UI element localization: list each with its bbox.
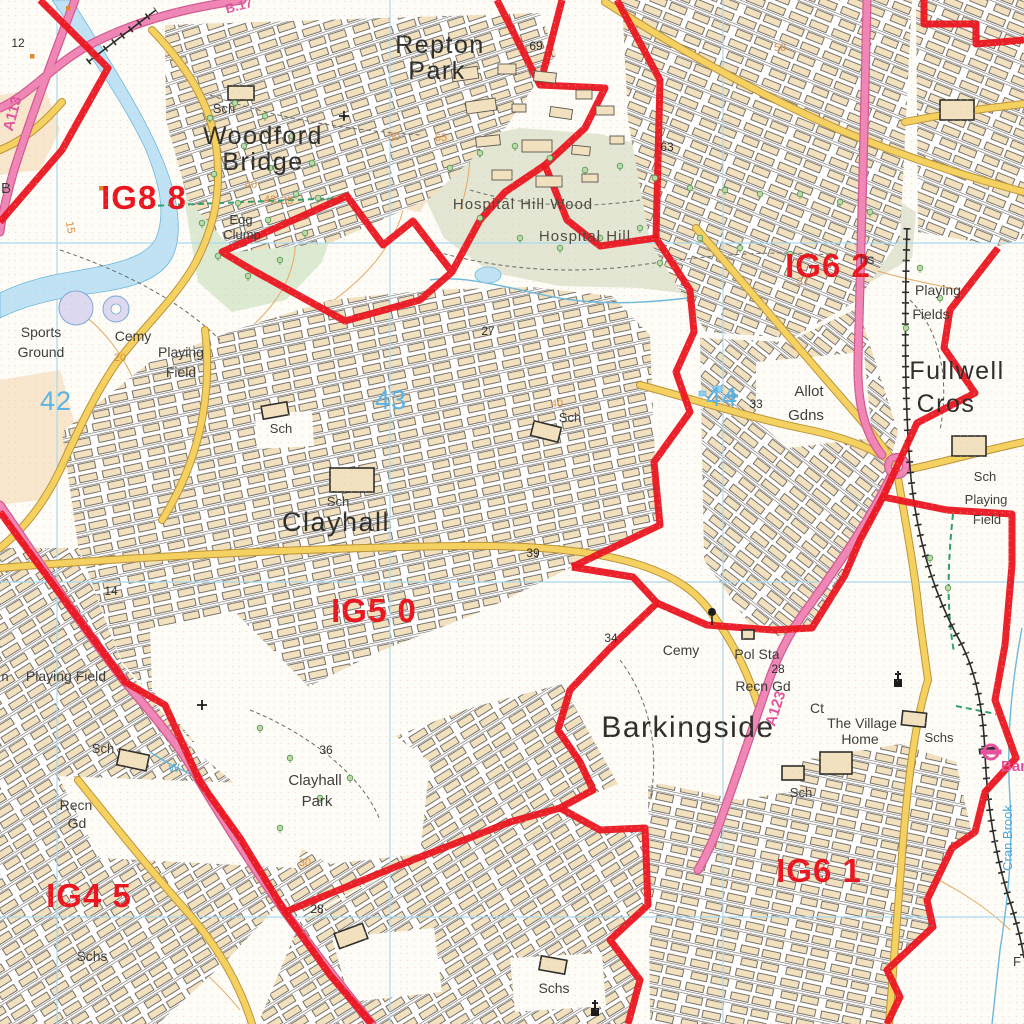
tree-icon [657,260,663,266]
building [536,176,562,187]
building [534,71,557,83]
postcode-district-label: IG6 1 [776,852,862,889]
feature-label: Home [841,731,879,747]
tree-icon [837,199,843,205]
feature-label: F [1013,954,1021,969]
pylon-dot-icon [66,6,71,11]
postcode-district-label: IG5 0 [331,592,417,629]
contour-value-label: 40 [551,398,563,410]
contour-value-label: 15 [63,220,77,234]
feature-label: Cemy [663,642,700,658]
tree-icon [557,245,563,251]
building [940,100,974,120]
feature-label: Sports [21,324,61,340]
station-roundel-bar [981,750,1002,755]
tree-icon [277,825,283,831]
mast-icon [708,608,716,616]
building [782,766,804,780]
contour-value-label: 30 [299,857,311,869]
tree-icon [737,245,743,251]
tree-icon [917,265,923,271]
tree-icon [722,187,728,193]
feature-label: Allot [794,383,824,400]
spot-height-label: 28 [771,662,785,676]
feature-label: Clayhall [288,772,341,789]
feature-label: Cemy [115,328,152,344]
feature-label: Ground [18,344,65,360]
feature-label: Ct [810,700,824,716]
feature-label: hs [860,251,875,267]
tree-icon [547,155,553,161]
grid-number-label: 43 [375,385,407,415]
tree-icon [903,325,909,331]
contour-value-label: 65 [435,132,447,144]
feature-label: Gdns [788,407,824,424]
pylon-dot-icon [30,54,35,59]
feature-label: Clump [223,227,261,242]
place-name-label: Repton [395,31,485,59]
feature-label: Sch [559,410,581,425]
tree-icon [512,143,518,149]
tree-icon [582,167,588,173]
spot-height-label: 36 [319,743,333,757]
postcode-district-label: IG8 8 [101,179,187,216]
feature-label: Recn [60,797,93,813]
feature-label: Fields [912,306,949,322]
feature-label: Playing Field [26,668,106,684]
spot-height-label: 69 [529,39,543,53]
grid-number-label: 44 [706,382,738,412]
station-name-label: Bar [1001,758,1024,775]
building [330,468,374,492]
tree-icon [757,191,763,197]
building [492,170,512,180]
feature-label: Field [166,364,196,380]
feature-label: Sch [213,101,235,116]
contour-value-label: 43 [264,194,276,206]
building [610,136,624,144]
feature-label: Pol Sta [734,646,779,662]
spot-height-label: 39 [526,546,540,560]
building [512,104,526,112]
spot-height-label: 63 [660,140,674,154]
tree-icon [637,225,643,231]
feature-label: Playing [915,282,961,298]
tree-icon [945,585,951,591]
tree-icon [262,113,268,119]
place-name-label: Bridge [222,148,303,176]
tree-icon [927,555,933,561]
tree-icon [797,191,803,197]
building [952,436,986,456]
contour-value-label: 50 [388,131,400,143]
building [742,630,754,639]
spot-height-label: 14 [104,584,118,598]
reservoir [59,291,93,325]
spot-height-label: 34 [604,631,618,645]
postcode-district-label: IG4 5 [46,877,132,914]
wood-name-label: Hospital Hill [539,228,631,245]
tree-icon [293,191,299,197]
building [901,711,926,727]
tree-icon [517,235,523,241]
tree-icon [211,171,217,177]
contour-value-label: 35 [281,195,293,207]
feature-label: Sch [790,785,812,800]
tree-icon [287,755,293,761]
building [572,145,591,156]
tree-icon [477,215,483,221]
tree-icon [257,725,263,731]
tree-icon [687,185,693,191]
building [582,174,598,182]
place-name-label: Woodford [203,122,323,150]
church-tower-icon [894,679,902,687]
feature-label: Sch [92,741,114,756]
feature-label: Sch [327,494,349,509]
church-tower-icon [591,1008,599,1016]
pond [475,267,501,283]
feature-label: Schs [538,980,569,996]
feature-label: Egg [229,212,252,227]
building [576,90,592,99]
contour-value-label: 40 [245,179,257,191]
feature-label: Sch [270,421,292,436]
feature-label: Schs [76,948,107,964]
place-name-label: Fullwell [909,357,1004,385]
feature-label: B [1,180,11,197]
urban-area [916,0,1024,246]
tree-icon [867,209,873,215]
feature-label: Gd [68,815,87,831]
place-name-label: Clayhall [282,507,390,537]
tree-icon [215,253,221,259]
tree-icon [477,150,483,156]
feature-label: The Village [827,715,897,731]
building [498,64,516,74]
feature-label: Field [973,512,1001,527]
os-street-map: IG8 8IG6 2IG5 0IG4 5IG6 1WoodfordBridgeR… [0,0,1024,1024]
tree-icon [235,200,241,206]
reservoir-ring [111,304,121,314]
tree-icon [245,273,251,279]
tree-icon [265,217,271,223]
building [476,135,501,147]
grid-number-label: 42 [40,386,72,416]
map-viewport: IG8 8IG6 2IG5 0IG4 5IG6 1WoodfordBridgeR… [0,0,1024,1024]
feature-label: Playing [965,492,1008,507]
place-name-label: Barkingside [601,711,774,744]
tree-icon [447,165,453,171]
building [228,86,254,100]
contour-value-label: 37 [797,276,809,288]
spot-height-label: 33 [749,397,763,411]
building [522,140,552,152]
spot-height-label: 27 [481,324,495,338]
building [820,752,852,774]
tree-icon [207,115,213,121]
water-name-label: W [168,761,180,775]
wood-name-label: Hospital Hill Wood [453,196,593,213]
water-building [699,391,706,396]
tree-icon [697,235,703,241]
contour-value-label: 50 [774,42,786,54]
feature-label: Recn Gd [735,678,790,694]
water-name-label: Cran Brook [1000,805,1015,871]
tree-icon [315,195,321,201]
tree-icon [277,257,283,263]
tree-icon [617,163,623,169]
building [596,106,614,115]
tree-icon [652,175,658,181]
feature-label: Playing [158,344,204,360]
spot-height-label: 12 [11,36,25,50]
tree-icon [302,230,308,236]
contour-value-label: 20 [114,352,126,364]
tree-icon [199,220,205,226]
feature-label: Park [302,793,333,810]
spot-height-label: 28 [310,902,324,916]
feature-label: n [1,669,8,684]
tree-icon [309,160,315,166]
feature-label: Sch [974,469,996,484]
tree-icon [347,775,353,781]
place-name-label: Cros [917,390,976,418]
feature-label: Schs [925,730,954,745]
place-name-label: Park [408,57,465,85]
